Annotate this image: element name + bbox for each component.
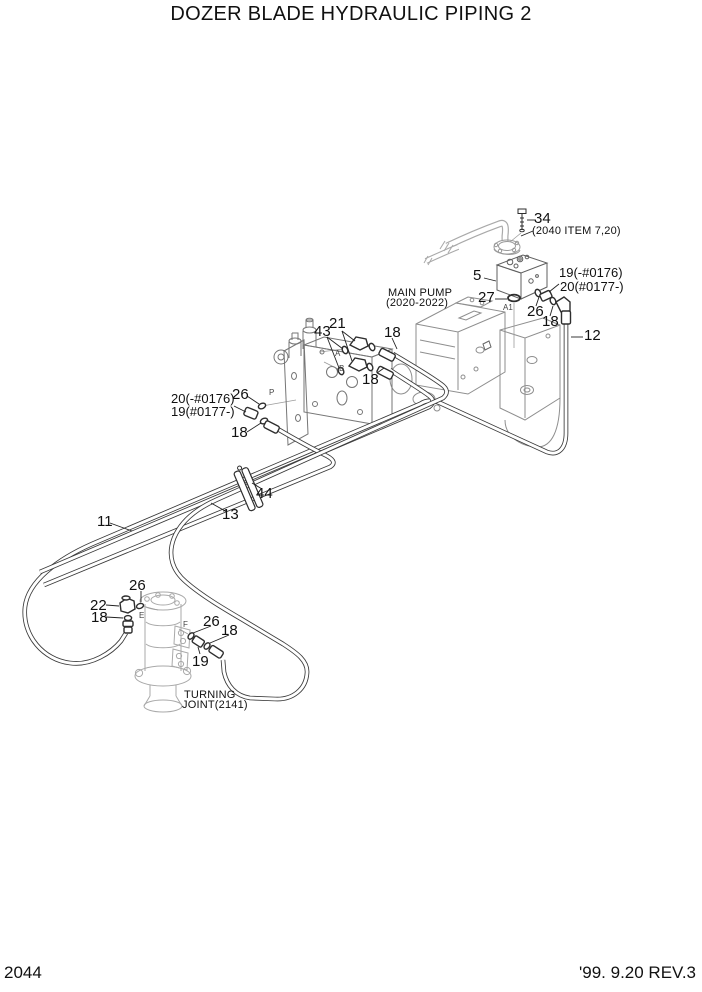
- callout-18-port-e: 18: [91, 610, 108, 625]
- callout-19-port-f: 19: [192, 654, 209, 669]
- elbow-22-top: [122, 596, 130, 600]
- hose-end-f: [208, 645, 224, 659]
- fitting-e-band1: [123, 621, 133, 627]
- page-title: DOZER BLADE HYDRAULIC PIPING 2: [0, 4, 702, 24]
- callout-18-port-b: 18: [362, 372, 379, 387]
- callout-20-right: 20(#0177-): [560, 280, 624, 293]
- callout-5: 5: [473, 268, 481, 283]
- oring-26-p: [257, 402, 266, 410]
- port-label-a: A: [335, 350, 340, 358]
- port-label-b: B: [339, 365, 344, 373]
- manual-page: DOZER BLADE HYDRAULIC PIPING 2 34 (2040 …: [0, 0, 702, 992]
- bolt-34: [518, 209, 526, 232]
- callout-26-port-e: 26: [129, 578, 146, 593]
- mounting-flange: [494, 240, 520, 254]
- oring-18-right: [549, 296, 557, 305]
- callout-18-port-a: 18: [384, 325, 401, 340]
- oring-43-a: [341, 345, 349, 354]
- oring-26-e: [136, 603, 144, 610]
- callout-27: 27: [478, 290, 495, 305]
- main-pump-note-line2: (2020-2022): [386, 298, 448, 309]
- callout-11: 11: [97, 514, 113, 529]
- fitting-e-band2: [124, 627, 132, 633]
- port-label-e: E: [139, 612, 144, 620]
- hose-end-12: [562, 311, 571, 324]
- callout-19-left: 19(#0177-): [171, 405, 235, 418]
- callout-19-right: 19(-#0176): [559, 266, 623, 279]
- port-label-p: P: [269, 389, 274, 397]
- page-number: 2044: [4, 964, 42, 981]
- callout-21: 21: [329, 316, 346, 331]
- callout-44: 44: [256, 486, 273, 501]
- fittings-and-orings: [120, 288, 571, 658]
- oring-18-a: [368, 342, 376, 351]
- hose-end-a: [378, 348, 396, 362]
- hose-end-p: [263, 420, 280, 433]
- elbow-fitting-right: [556, 297, 570, 312]
- diagram-drawing: [0, 0, 702, 992]
- callout-13: 13: [222, 507, 239, 522]
- bracket-arm-reference: [424, 223, 505, 265]
- turning-joint-reference: [135, 592, 191, 712]
- port-label-f: F: [183, 621, 188, 629]
- callout-34-note: (2040 ITEM 7,20): [532, 226, 621, 237]
- assembly-alignment-lines: [146, 233, 521, 634]
- port-label-a1: A1: [503, 304, 513, 312]
- callout-34: 34: [534, 211, 551, 226]
- revision-date: '99. 9.20 REV.3: [579, 964, 696, 981]
- callout-18-port-p: 18: [231, 425, 248, 440]
- callout-12: 12: [584, 328, 601, 343]
- turning-joint-note-line2: JOINT(2141): [182, 700, 248, 711]
- hose-end-b: [376, 366, 394, 380]
- callout-18-port-f: 18: [221, 623, 238, 638]
- callout-26-port-f: 26: [203, 614, 220, 629]
- callout-18-right: 18: [542, 314, 559, 329]
- fitting-19-20-left: [243, 407, 258, 420]
- oring-18-e: [124, 616, 131, 621]
